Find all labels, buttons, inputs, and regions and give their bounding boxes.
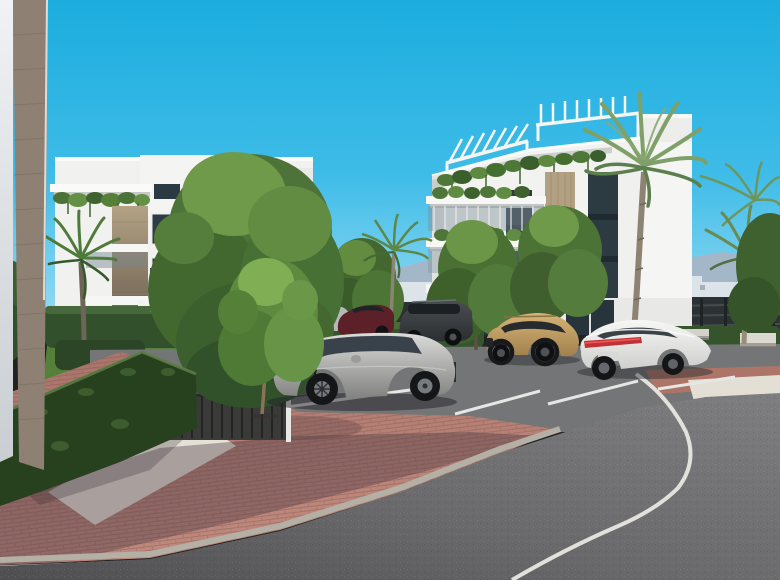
foreground-corner-wall xyxy=(0,0,48,470)
scene-canvas xyxy=(0,0,780,580)
roof-overhang xyxy=(50,184,152,192)
white-pilaster xyxy=(0,0,13,462)
rendered-scene xyxy=(0,0,780,580)
tan-textured-wall xyxy=(13,0,48,470)
